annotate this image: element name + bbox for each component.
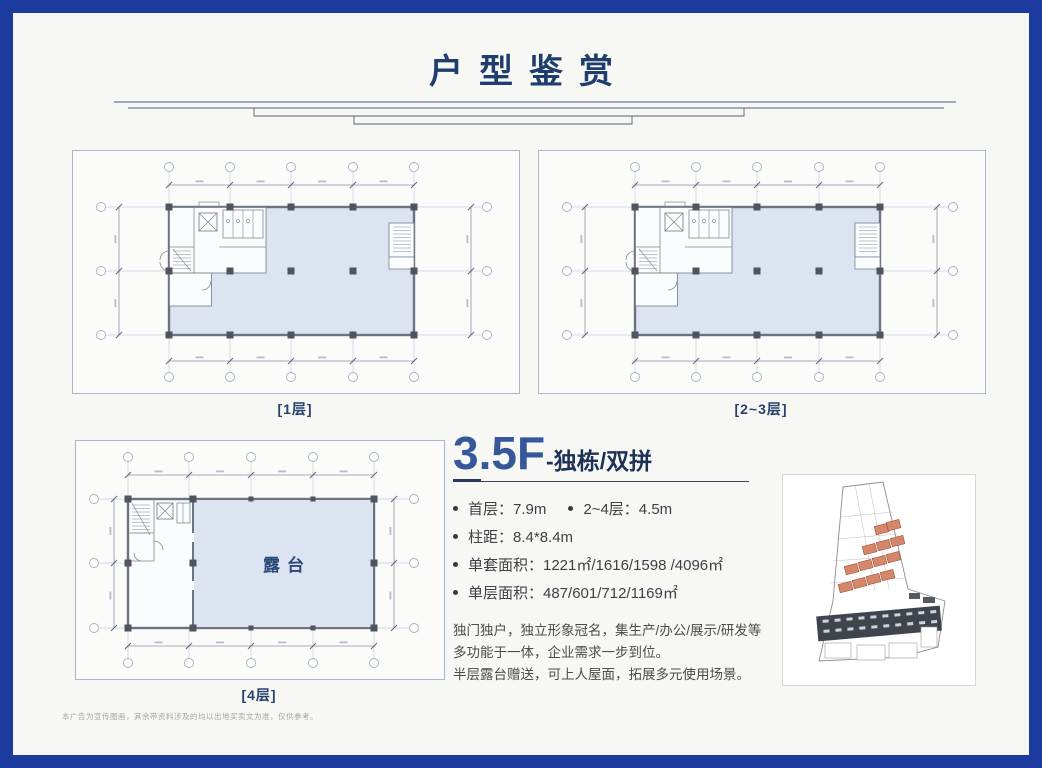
- site-plan-drawing: [783, 475, 975, 685]
- brochure-page: 户型鉴赏 [1层] [2~3层] 露台 [4层] 3.5F -独栋/双拼: [0, 0, 1042, 768]
- spec-item-floor-area: 单层面积：487/601/712/1169㎡: [468, 582, 678, 603]
- spec-row-unit-area: 单套面积：1221㎡/1616/1598 /4096㎡: [453, 550, 783, 578]
- site-plan: [782, 474, 976, 686]
- title-divider-graphic: [112, 99, 958, 129]
- bullet-dot: [453, 534, 458, 539]
- spec-underline: [453, 481, 749, 482]
- spec-headline: 3.5F: [453, 430, 545, 476]
- floor-plan-1-drawing: [73, 151, 519, 393]
- spec-row-heights: 首层：7.9m 2~4层：4.5m: [453, 494, 783, 522]
- page-title: 户型鉴赏: [0, 44, 1042, 93]
- floor-plan-4-label: [4层]: [75, 685, 443, 705]
- terrace-room-label: 露台: [193, 499, 374, 628]
- spec-rows: 首层：7.9m 2~4层：4.5m 柱距：8.4*8.4m 单套面积：1221㎡…: [453, 494, 783, 606]
- floor-plan-2-3: [538, 150, 986, 394]
- spec-item-upper-floor-height: 2~4层：4.5m: [583, 498, 672, 519]
- spec-item-first-floor-height: 首层：7.9m: [468, 498, 546, 519]
- spec-item-unit-area: 单套面积：1221㎡/1616/1598 /4096㎡: [468, 554, 723, 575]
- floor-plan-1-label: [1层]: [72, 399, 518, 419]
- spec-headline-suffix: -独栋/双拼: [546, 442, 652, 476]
- spec-block: 3.5F -独栋/双拼 首层：7.9m 2~4层：4.5m 柱距：8.4*8.4…: [453, 430, 783, 686]
- spec-description-line-2: 多功能于一体，企业需求一步到位。: [453, 642, 783, 664]
- spec-description-line-3: 半层露台赠送，可上人屋面，拓展多元使用场景。: [453, 664, 783, 686]
- bullet-dot: [453, 590, 458, 595]
- floor-plan-2-3-drawing: [539, 151, 985, 393]
- floor-plan-1: [72, 150, 520, 394]
- disclaimer-text: 本广告为宣传图画，其余带资料涉及的均以出地买卖文为准，仅供参考。: [62, 711, 318, 722]
- spec-item-column-spacing: 柱距：8.4*8.4m: [468, 526, 573, 547]
- spec-row-column-spacing: 柱距：8.4*8.4m: [453, 522, 783, 550]
- spec-headline-row: 3.5F -独栋/双拼: [453, 430, 783, 476]
- floor-plan-4: 露台: [75, 440, 445, 680]
- spec-description: 独门独户，独立形象冠名，集生产/办公/展示/研发等 多功能于一体，企业需求一步到…: [453, 620, 783, 686]
- bullet-dot: [453, 506, 458, 511]
- bullet-dot: [568, 506, 573, 511]
- spec-row-floor-area: 单层面积：487/601/712/1169㎡: [453, 578, 783, 606]
- bullet-dot: [453, 562, 458, 567]
- title-divider: [112, 99, 958, 129]
- floor-plan-2-3-label: [2~3层]: [538, 399, 984, 419]
- spec-description-line-1: 独门独户，独立形象冠名，集生产/办公/展示/研发等: [453, 620, 783, 642]
